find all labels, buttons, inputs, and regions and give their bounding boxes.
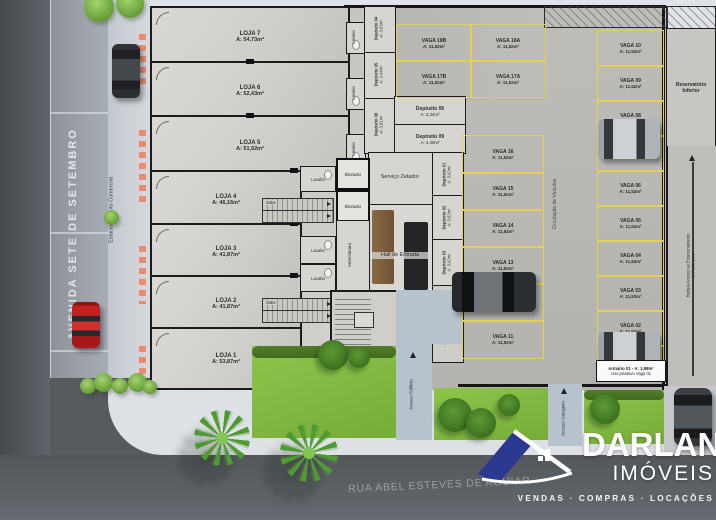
parking-stall: VAGA 09 A: 11,52m² — [597, 65, 664, 102]
door-arc-icon — [156, 229, 169, 242]
parking-stall: VAGA 17A A: 11,52m² — [470, 60, 546, 98]
logo-brand: DARLAN — [582, 426, 714, 464]
reservoir-room: Reservatório Inferior — [666, 28, 716, 148]
curb-marking — [139, 130, 146, 202]
loja-area: A: 46,16m² — [212, 200, 240, 206]
parking-stall: VAGA 18B A: 11,52m² — [396, 24, 472, 62]
arrow-right-icon — [327, 202, 331, 206]
palm-tree — [194, 410, 250, 466]
deposit-label: Depósito 01A: 3,62m² — [442, 153, 453, 197]
stall-area: A: 11,52m² — [423, 44, 445, 49]
wall-column — [290, 273, 298, 278]
lavabo-label: Lavabo — [311, 276, 325, 281]
parking-stall: VAGA 06 A: 11,52m² — [597, 170, 664, 207]
deposit-room: Depósito 06 A: 4,34m² — [394, 96, 466, 126]
bush — [112, 378, 128, 394]
parking-stall: VAGA 05 A: 11,52m² — [597, 205, 664, 242]
stall-area: A: 11,52m² — [492, 340, 514, 345]
reservoir-label: Inferior — [682, 88, 699, 94]
stall-area: A: 11,52m² — [620, 224, 642, 229]
caretaker-label: Serviço Zelador — [368, 174, 432, 181]
mezzanine-stairs — [262, 310, 334, 323]
stall-area: A: 11,52m² — [497, 80, 519, 85]
deposit-area: A: 4,34m² — [420, 112, 439, 117]
stall-area: A: 11,52m² — [492, 266, 514, 271]
curb-marking — [139, 34, 146, 88]
door-arc-icon — [156, 67, 169, 80]
arrow-right-icon — [327, 214, 331, 218]
toilet-icon — [324, 240, 332, 250]
logo-type: IMÓVEIS — [582, 462, 714, 486]
bush — [94, 373, 113, 392]
house-logo-icon — [478, 424, 578, 484]
loja-area: A: 52,43m² — [236, 91, 264, 97]
parking-stall: VAGA 15 A: 11,52m² — [462, 172, 544, 211]
loja-unit: LOJA 7 A: 54,73m² — [150, 6, 350, 67]
vehicle-circulation-label: Circulação de Veículos — [552, 164, 562, 244]
stair-landing — [354, 312, 374, 328]
lavabo-label: Lavabo — [351, 81, 359, 105]
projection-hatch — [544, 6, 668, 28]
hall-label: Hall de Entrada — [368, 252, 432, 259]
deposit-label: Depósito 02A: 3,62m² — [442, 196, 453, 240]
logo-tagline: VENDAS · COMPRAS · LOCAÇÕES — [494, 494, 714, 503]
lavabo-label: Lavabo — [311, 177, 325, 182]
stairs-up-label: Sobe — [265, 200, 277, 205]
loja-area: A: 41,87m² — [212, 304, 240, 310]
cabinet-note-line2: Uso privativo Vaga 01 — [611, 371, 651, 376]
ramp-label: Rampa Acesso ao Estacionamento 2º Pavime… — [686, 211, 699, 321]
door-arc-icon — [156, 281, 169, 294]
stairs-up-label: Sobe — [265, 300, 277, 305]
loja-unit: LOJA 3 A: 41,87m² — [150, 223, 302, 281]
parked-car-silver — [598, 119, 660, 159]
deposit-label: Depósito 03A: 3,62m² — [442, 241, 453, 285]
building-access-label: Acesso Edifício — [409, 360, 418, 430]
elevator: Elevador — [336, 158, 370, 190]
stall-area: A: 11,52m² — [423, 80, 445, 85]
parking-stall: VAGA 14 A: 11,52m² — [462, 209, 544, 248]
stall-area: A: 11,52m² — [620, 294, 642, 299]
lavabo-room: Lavabo — [300, 264, 336, 292]
agency-logo: DARLAN IMÓVEIS VENDAS · COMPRAS · LOCAÇÕ… — [470, 418, 716, 518]
bush — [104, 210, 119, 225]
lane-line — [50, 350, 108, 352]
arrow-up-icon — [689, 155, 695, 161]
stall-area: A: 11,52m² — [492, 192, 514, 197]
tree — [498, 394, 520, 416]
door-arc-icon — [156, 333, 169, 346]
toilet-icon — [324, 170, 332, 180]
curb-marking — [139, 246, 146, 304]
lavabo-label: Lavabo — [351, 25, 359, 49]
deposit-label: Depósito 05A: 3,44m² — [374, 53, 385, 97]
wall-column — [290, 168, 298, 173]
lavabo-room: Lavabo — [300, 166, 336, 192]
deposit-label: Depósito 04A: 3,63m² — [374, 7, 385, 51]
stall-area: A: 11,52m² — [497, 44, 519, 49]
toilet-icon — [324, 268, 332, 278]
parking-stall: VAGA 16 A: 11,52m² — [462, 135, 544, 174]
projection-hatch — [666, 6, 716, 30]
elevator: Elevador — [336, 190, 370, 222]
wall-column — [246, 113, 254, 118]
wall-column — [246, 59, 254, 64]
loja-unit: LOJA 6 A: 52,43m² — [150, 61, 350, 121]
loja-area: A: 41,87m² — [212, 252, 240, 258]
deposit-room: Depósito 09 A: 4,40m² — [394, 124, 466, 154]
parked-car-dark — [112, 44, 140, 98]
door-arc-icon — [156, 176, 169, 189]
loja-area: A: 54,73m² — [236, 37, 264, 43]
ante-chamber-label: Antecâmara — [347, 223, 357, 287]
avenue-asphalt — [0, 0, 50, 520]
lavabo-room: Lavabo — [300, 236, 336, 264]
parking-stall: VAGA 10 A: 11,52m² — [597, 30, 664, 67]
parking-stall: VAGA 18A A: 11,52m² — [470, 24, 546, 62]
parking-stall: VAGA 04 A: 11,52m² — [597, 240, 664, 277]
floor-plan-poster: AVENIDA SETE DE SETEMBRO Estacionamento … — [0, 0, 716, 520]
tree — [318, 340, 348, 370]
palm-tree — [280, 424, 338, 482]
parking-stall: VAGA 03 A: 11,52m² — [597, 275, 664, 312]
arrow-up-icon — [410, 352, 416, 358]
door-arc-icon — [156, 12, 169, 25]
lane-line — [50, 112, 108, 114]
lavabo-label: Lavabo — [311, 248, 325, 253]
door-arc-icon — [156, 121, 169, 134]
loja-area: A: 51,92m² — [236, 146, 264, 152]
stall-area: A: 11,52m² — [620, 49, 642, 54]
loja-area: A: 53,87m² — [212, 359, 240, 365]
stall-area: A: 11,52m² — [492, 155, 514, 160]
stall-area: A: 11,52m² — [620, 189, 642, 194]
cabinet-note: Armário 01 - A: 1,98m² Uso privativo Vag… — [596, 360, 666, 382]
tree — [348, 346, 370, 368]
stall-area: A: 11,52m² — [492, 229, 514, 234]
mezzanine-stairs — [262, 210, 334, 223]
bush — [143, 380, 157, 394]
deposit-area: A: 4,40m² — [420, 140, 439, 145]
stall-area: A: 11,52m² — [620, 84, 642, 89]
parked-car-dark — [452, 272, 536, 312]
reception-desk — [372, 210, 394, 284]
stall-area: A: 11,52m² — [620, 259, 642, 264]
parking-stall: VAGA 11 A: 11,52m² — [462, 320, 544, 359]
parking-stall: VAGA 17B A: 11,52m² — [396, 60, 472, 98]
parked-car-red — [72, 302, 100, 348]
deposit-label: Depósito 08A: 3,91m² — [374, 103, 385, 147]
